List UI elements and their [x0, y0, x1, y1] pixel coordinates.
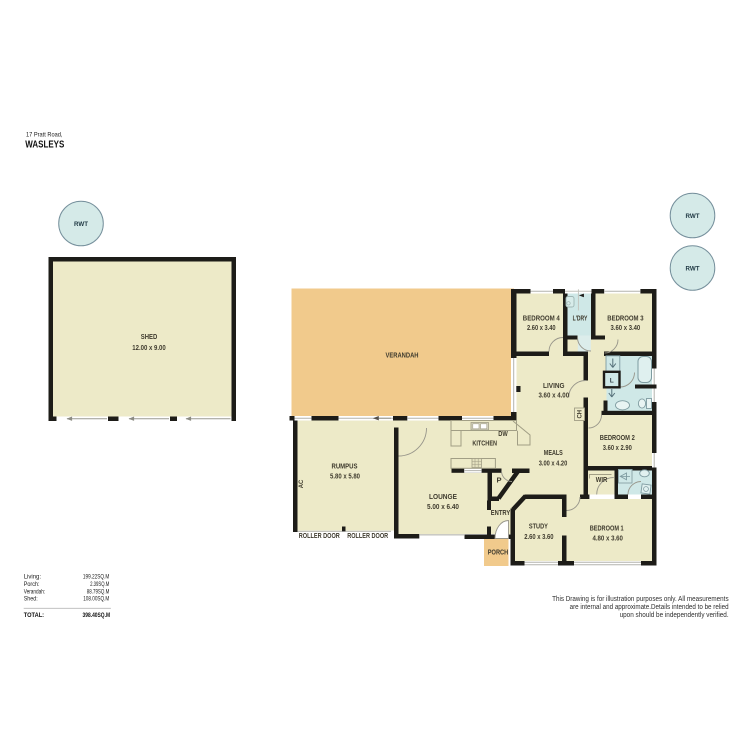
svg-text:BEDROOM 4: BEDROOM 4	[523, 314, 561, 323]
svg-text:MEALS: MEALS	[544, 448, 563, 457]
svg-text:CH: CH	[578, 410, 584, 419]
svg-text:STUDY: STUDY	[529, 522, 548, 531]
svg-text:2.60 x 3.40: 2.60 x 3.40	[527, 323, 556, 332]
svg-text:TOTAL:: TOTAL:	[24, 612, 44, 619]
svg-text:5.00 x 6.40: 5.00 x 6.40	[427, 502, 459, 511]
svg-text:RWT: RWT	[686, 266, 701, 273]
svg-text:Porch:: Porch:	[24, 581, 40, 588]
svg-text:SHED: SHED	[141, 332, 158, 341]
svg-text:L: L	[610, 377, 614, 384]
svg-text:upon should be independently v: upon should be independently verified.	[620, 612, 729, 619]
svg-text:3.60 x 3.40: 3.60 x 3.40	[611, 323, 641, 332]
svg-text:AC: AC	[298, 479, 305, 488]
svg-text:3.60 x 2.90: 3.60 x 2.90	[603, 443, 632, 452]
svg-text:Living:: Living:	[24, 573, 42, 580]
svg-text:Shed:: Shed:	[24, 596, 38, 603]
svg-text:KITCHEN: KITCHEN	[472, 439, 497, 448]
svg-text:VERANDAH: VERANDAH	[386, 351, 419, 360]
svg-text:RWT: RWT	[686, 213, 701, 220]
svg-text:12.00 x 9.00: 12.00 x 9.00	[132, 343, 166, 352]
svg-text:DW: DW	[498, 429, 508, 438]
svg-text:2.60 x 3.60: 2.60 x 3.60	[524, 532, 553, 541]
svg-text:3.00 x 4.20: 3.00 x 4.20	[539, 459, 568, 468]
svg-text:ROLLER DOOR: ROLLER DOOR	[347, 533, 388, 540]
svg-text:5.80 x 5.80: 5.80 x 5.80	[330, 471, 360, 480]
svg-text:RWT: RWT	[74, 221, 89, 228]
svg-text:BEDROOM 1: BEDROOM 1	[590, 524, 625, 533]
svg-text:LIVING: LIVING	[543, 381, 565, 390]
svg-text:88.79SQ.M: 88.79SQ.M	[87, 588, 110, 595]
svg-text:Verandah:: Verandah:	[24, 588, 46, 595]
svg-text:WIR: WIR	[596, 475, 608, 484]
svg-text:BEDROOM 3: BEDROOM 3	[607, 314, 643, 323]
svg-text:are internal and approximate.D: are internal and approximate.Details int…	[570, 604, 729, 611]
svg-text:ROLLER DOOR: ROLLER DOOR	[299, 533, 340, 540]
svg-text:LOUNGE: LOUNGE	[429, 492, 457, 501]
svg-text:BEDROOM 2: BEDROOM 2	[600, 433, 635, 442]
svg-text:17 Pratt Road,: 17 Pratt Road,	[26, 132, 63, 139]
svg-text:WASLEYS: WASLEYS	[25, 140, 64, 151]
svg-text:RUMPUS: RUMPUS	[332, 462, 358, 471]
svg-text:3.60 x 4.00: 3.60 x 4.00	[538, 391, 569, 400]
svg-text:This Drawing is for illustrati: This Drawing is for illustration purpose…	[552, 596, 729, 603]
svg-text:ENTRY: ENTRY	[491, 508, 511, 517]
svg-text:P: P	[496, 476, 501, 485]
svg-text:L'DRY: L'DRY	[573, 314, 588, 323]
svg-text:398.40SQ.M: 398.40SQ.M	[83, 612, 111, 619]
svg-text:4.80 x 3.60: 4.80 x 3.60	[592, 533, 623, 542]
svg-text:PORCH: PORCH	[488, 548, 509, 557]
svg-text:2.39SQ.M: 2.39SQ.M	[90, 581, 109, 588]
svg-text:108.00SQ.M: 108.00SQ.M	[83, 596, 109, 603]
svg-text:199.22SQ.M: 199.22SQ.M	[83, 573, 109, 580]
